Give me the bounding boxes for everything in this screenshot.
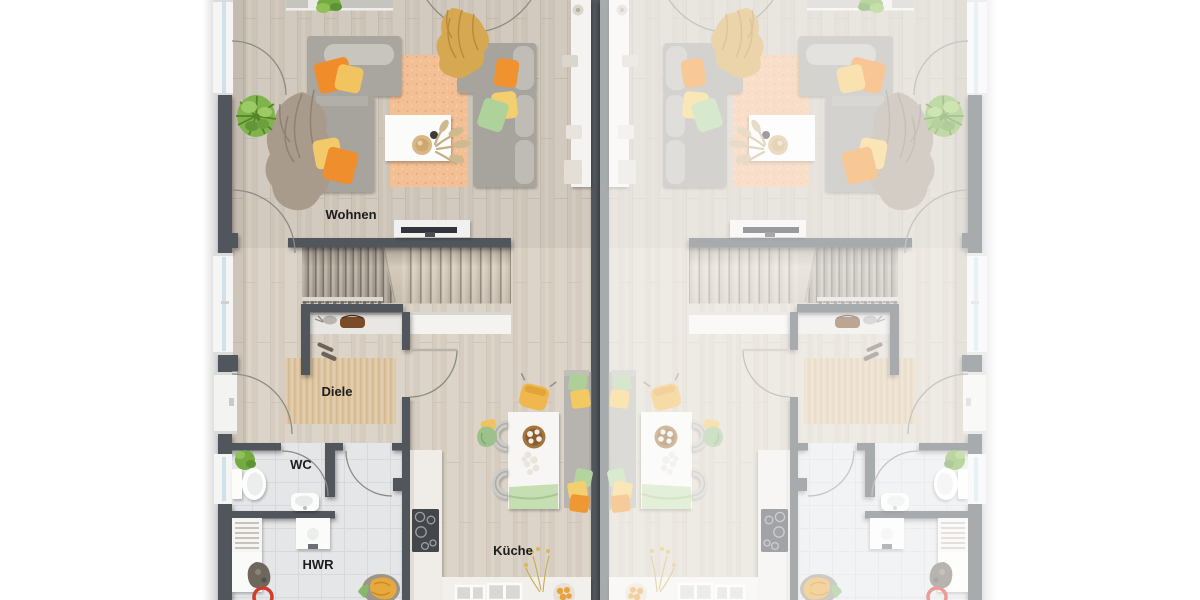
- svg-text:WC: WC: [290, 457, 312, 472]
- svg-text:Küche: Küche: [493, 543, 533, 558]
- svg-text:HWR: HWR: [302, 557, 334, 572]
- svg-text:Wohnen: Wohnen: [325, 207, 376, 222]
- svg-text:Diele: Diele: [321, 384, 352, 399]
